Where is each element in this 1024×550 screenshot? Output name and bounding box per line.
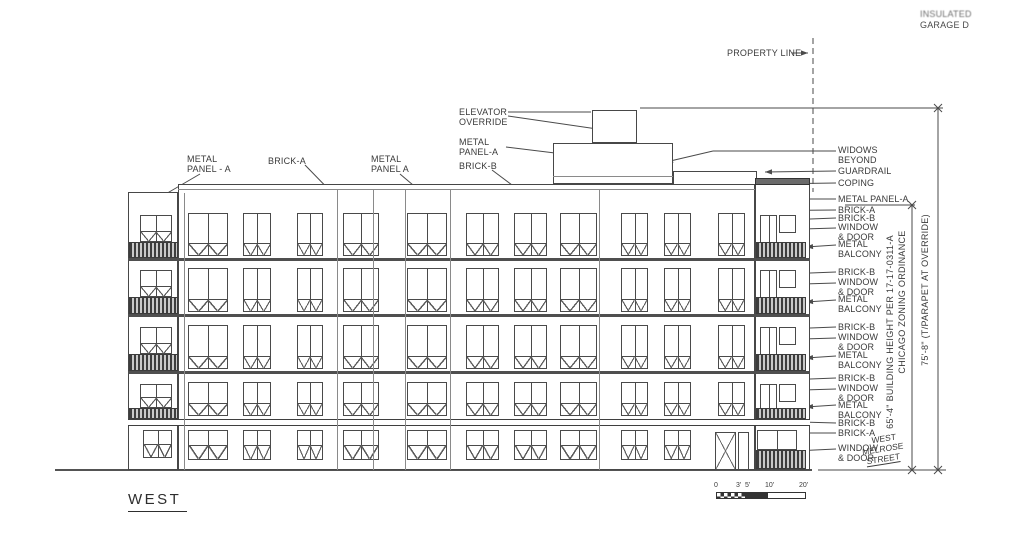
floor-line <box>128 258 810 261</box>
window <box>466 213 499 256</box>
window <box>243 268 271 312</box>
floor-line <box>128 371 810 374</box>
ground-window <box>664 430 691 460</box>
ground-window <box>621 430 648 460</box>
balcony-door <box>760 327 777 357</box>
window <box>466 268 499 312</box>
callout-text: COPING <box>838 179 874 189</box>
callout-metal-panel-a-left2: METAL PANEL A <box>371 154 409 174</box>
view-title: WEST <box>128 491 187 512</box>
window <box>560 268 597 312</box>
garage-note-line1: INSULATED <box>920 9 972 20</box>
window <box>560 382 597 416</box>
garage-note-line2: GARAGE D <box>920 20 972 31</box>
window <box>243 382 271 416</box>
elevation-drawing-sheet: INSULATED GARAGE D PROPERTY LINE METAL P… <box>0 0 1024 550</box>
balcony-window <box>779 384 796 402</box>
callout-text: METAL PANEL-A <box>838 195 909 205</box>
window <box>664 325 691 369</box>
window <box>621 213 648 256</box>
window <box>514 325 547 369</box>
entry-door <box>715 432 736 470</box>
window <box>297 382 323 416</box>
metal-balcony-hatch <box>129 297 178 314</box>
ground-window <box>297 430 323 460</box>
scale-checker-segment <box>717 493 745 498</box>
window <box>514 382 547 416</box>
balcony-door <box>760 270 777 300</box>
window <box>718 325 745 369</box>
window <box>718 213 745 256</box>
balcony-window <box>779 327 796 345</box>
metal-balcony-hatch <box>129 354 178 371</box>
window <box>243 213 271 256</box>
metal-balcony-hatch <box>756 354 806 371</box>
door-sidelite <box>738 432 749 470</box>
callout-metal-panel-a-left: METAL PANEL - A <box>187 154 231 174</box>
balcony-window <box>779 270 796 288</box>
facade-joint-line <box>450 190 451 470</box>
penthouse-base-line <box>553 176 673 177</box>
window <box>188 213 228 256</box>
scale-solid-segment <box>745 493 768 498</box>
facade-joint-line <box>337 189 338 470</box>
callout-metal-panel-a: METAL PANEL-A <box>838 195 909 205</box>
ground-window <box>560 430 597 460</box>
window <box>466 382 499 416</box>
ground-fence-hatch <box>756 450 806 469</box>
window <box>188 268 228 312</box>
window <box>297 213 323 256</box>
facade-joint-line <box>184 193 185 470</box>
window <box>243 325 271 369</box>
metal-balcony-hatch <box>756 408 806 419</box>
ground-window <box>243 430 271 460</box>
callout-guardrail: GUARDRAIL <box>838 167 891 177</box>
penthouse-wing-outline <box>673 171 757 184</box>
balcony-door <box>760 384 777 411</box>
window <box>664 213 691 256</box>
ground-window <box>188 430 228 460</box>
scale-label-20: 20' <box>799 482 808 489</box>
callout-text: BALCONY <box>838 250 882 260</box>
callout-text: GUARDRAIL <box>838 167 891 177</box>
window <box>297 268 323 312</box>
callout-elevator-override: ELEVATOR OVERRIDE <box>459 107 508 127</box>
window <box>514 213 547 256</box>
scale-empty-segment <box>768 493 805 498</box>
callout-coping: COPING <box>838 179 874 189</box>
callout-metal-panel-a-mid: METAL PANEL-A <box>459 137 498 157</box>
metal-balcony-hatch <box>129 408 178 419</box>
coping-line <box>178 189 755 190</box>
window <box>718 268 745 312</box>
bay-window <box>140 270 172 297</box>
ground-window <box>514 430 547 460</box>
window <box>466 325 499 369</box>
callout-metal: METALBALCONY <box>838 351 882 370</box>
storefront-window <box>757 430 797 450</box>
balcony-window <box>779 215 796 233</box>
window <box>560 325 597 369</box>
ground-window <box>466 430 499 460</box>
window <box>407 268 447 312</box>
graphic-scale-bar <box>716 492 806 499</box>
window <box>407 325 447 369</box>
scale-label-0: 0 <box>714 482 718 489</box>
scale-label-5: 5' <box>745 482 750 489</box>
zoning-ordinance-dimension: CHICAGO ZONING ORDINANCE <box>897 230 907 373</box>
window <box>560 213 597 256</box>
callout-widows: WIDOWSBEYOND <box>838 146 878 165</box>
parapet-height-dimension: 75'-8" (T/PARAPET AT OVERRIDE) <box>920 214 930 366</box>
callout-text: BALCONY <box>838 361 882 371</box>
window <box>297 325 323 369</box>
window <box>664 382 691 416</box>
scale-label-10: 10' <box>765 482 774 489</box>
metal-balcony-hatch <box>756 242 806 258</box>
window <box>621 325 648 369</box>
window <box>621 382 648 416</box>
window <box>664 268 691 312</box>
callout-brick-a-left: BRICK-A <box>268 156 306 166</box>
callout-brick-b-mid: BRICK-B <box>459 161 497 171</box>
window <box>407 382 447 416</box>
callout-text: BALCONY <box>838 305 882 315</box>
bay-window <box>140 384 172 408</box>
second-floor-heavy-line <box>128 419 810 426</box>
right-bay-coping <box>755 178 810 185</box>
bay-window <box>140 327 172 354</box>
window <box>718 382 745 416</box>
window <box>621 268 648 312</box>
balcony-door <box>760 215 777 245</box>
bay-window <box>140 215 172 242</box>
ground-window <box>143 430 172 458</box>
building-height-dimension: 65'-4" BUILDING HEIGHT PER 17-17-0311-A <box>885 235 895 429</box>
callout-text: BEYOND <box>838 156 878 166</box>
penthouse-outline <box>553 143 673 184</box>
window <box>514 268 547 312</box>
scale-label-3: 3' <box>736 482 741 489</box>
elevator-override-outline <box>592 110 637 143</box>
garage-note: INSULATED GARAGE D <box>920 9 972 30</box>
property-line-label: PROPERTY LINE <box>727 48 801 58</box>
callout-metal: METALBALCONY <box>838 295 882 314</box>
window <box>407 213 447 256</box>
window <box>188 382 228 416</box>
metal-balcony-hatch <box>756 297 806 314</box>
ground-window <box>407 430 447 460</box>
facade-joint-line <box>599 189 600 470</box>
facade-joint-line <box>405 190 406 470</box>
window <box>188 325 228 369</box>
floor-line <box>128 314 810 317</box>
facade-joint-line <box>373 189 374 470</box>
callout-metal: METALBALCONY <box>838 240 882 259</box>
metal-balcony-hatch <box>129 242 178 258</box>
